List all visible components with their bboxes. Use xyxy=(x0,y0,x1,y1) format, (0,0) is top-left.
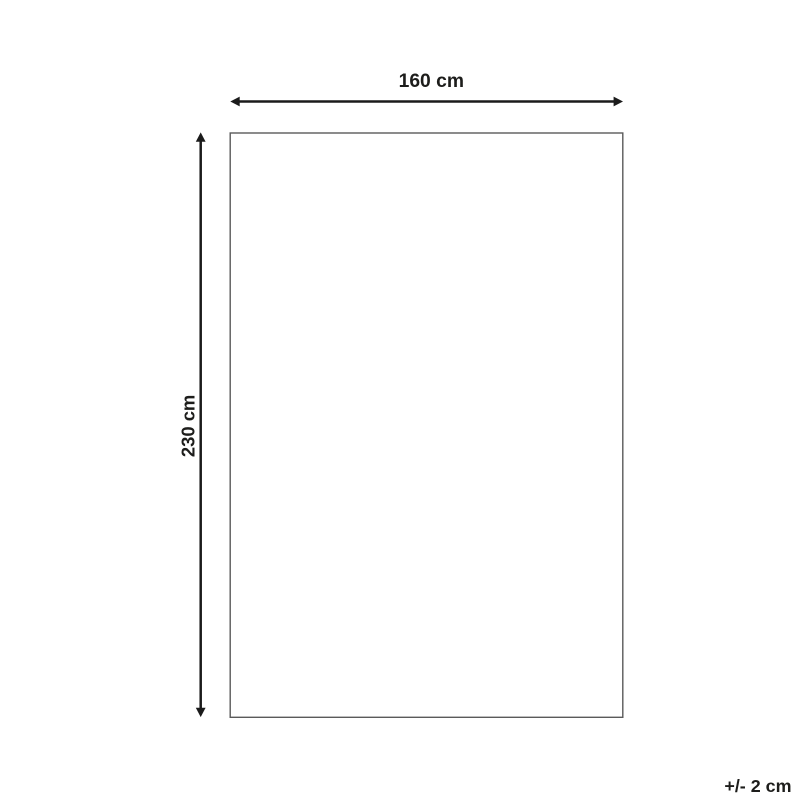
svg-text:230 cm: 230 cm xyxy=(178,395,199,457)
svg-text:160 cm: 160 cm xyxy=(399,71,464,92)
svg-text:+/- 2 cm: +/- 2 cm xyxy=(724,776,791,796)
